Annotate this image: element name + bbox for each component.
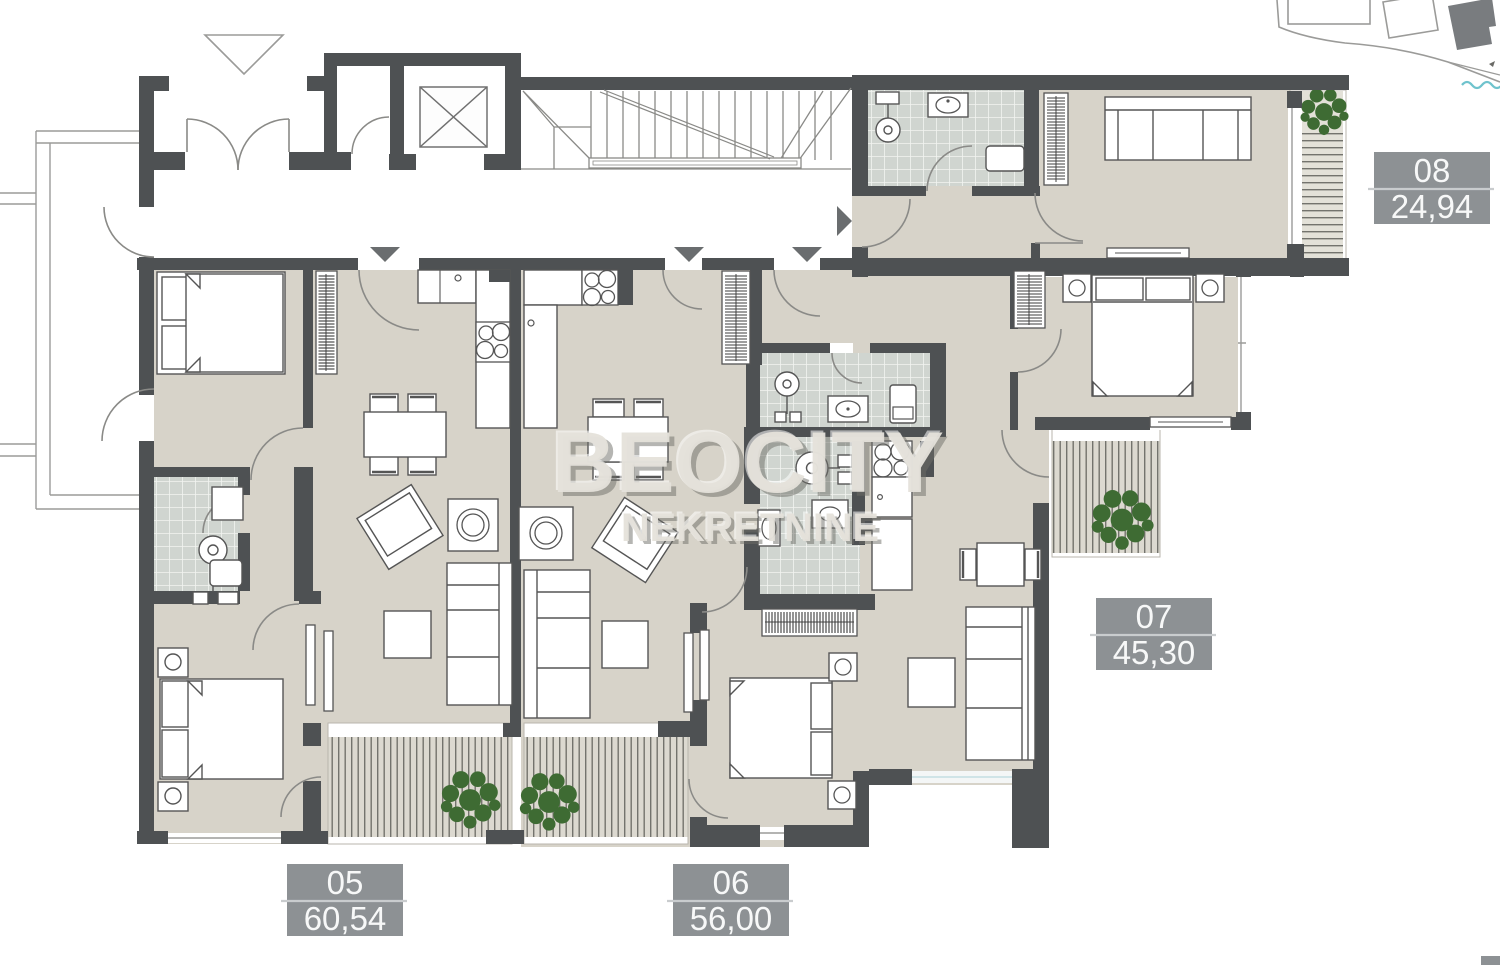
- svg-text:06: 06: [713, 864, 750, 901]
- svg-text:60,54: 60,54: [304, 900, 387, 937]
- svg-text:05: 05: [327, 864, 364, 901]
- svg-text:45,30: 45,30: [1113, 634, 1196, 671]
- svg-text:56,00: 56,00: [690, 900, 773, 937]
- svg-text:NEKRETNINE: NEKRETNINE: [621, 506, 879, 550]
- svg-text:BEOCITY: BEOCITY: [552, 415, 944, 511]
- svg-text:24,94: 24,94: [1391, 188, 1474, 225]
- svg-text:07: 07: [1136, 598, 1173, 635]
- svg-text:08: 08: [1414, 152, 1451, 189]
